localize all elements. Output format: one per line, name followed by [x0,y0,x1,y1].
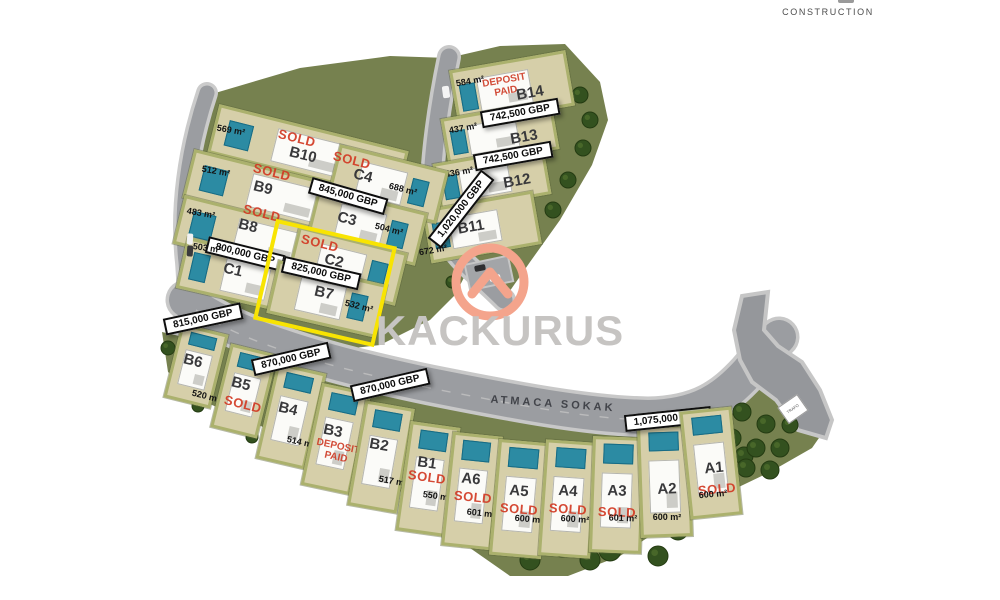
plot-id-label-A3: A3 [607,482,627,500]
pool [691,415,722,436]
pool [508,447,539,469]
area-label-A3: 601 m² [609,513,638,524]
site-plan: B14DEPOSIT PAID584 m²B13742,500 GBP437 m… [0,0,1000,600]
car [187,245,194,256]
pool [418,430,449,452]
area-label-A4: 600 m² [560,513,589,525]
car [187,233,194,244]
pool [188,252,211,283]
plot-id-label-A5: A5 [509,482,530,501]
logo-wordmark: KACKURUS [376,307,624,355]
plot-id-label-A2: A2 [657,480,677,498]
pool [603,444,633,465]
pool [555,447,586,469]
area-label-A2: 600 m² [653,512,682,522]
pool [283,372,314,395]
plot-id-label-A1: A1 [704,459,725,478]
plot-id-label-A6: A6 [461,470,482,489]
plot-id-label-A4: A4 [558,482,578,500]
pool [372,409,403,432]
construction-logo-cropped [838,0,854,3]
price-tag-B2: 870,000 GBP [350,368,430,402]
pool [649,432,679,452]
pool [188,331,218,350]
construction-label: CONSTRUCTION [782,7,874,17]
pool [461,440,491,462]
car [442,86,451,99]
plot-id-label-B2: B2 [368,435,390,455]
